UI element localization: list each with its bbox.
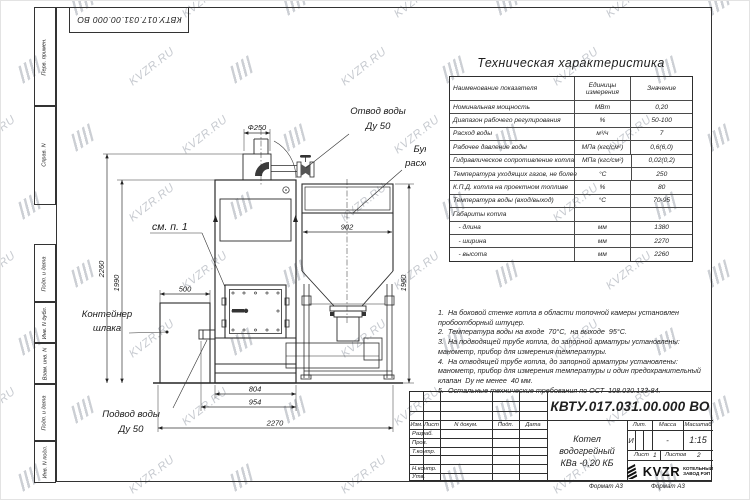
- tech-name: Расход воды: [450, 128, 574, 140]
- format-label-right: Формат А3: [651, 483, 685, 490]
- tech-table-row: - длинамм1380: [450, 221, 692, 234]
- tech-value: 2270: [630, 235, 692, 247]
- tech-name: Диапазон рабочего регулирования: [450, 114, 574, 126]
- top-left-stamp-text: КВТУ.017.031.00.000 ВО: [77, 15, 182, 25]
- watermark-text: KVZR.RU: [0, 114, 18, 157]
- lit-label: Лит.: [627, 420, 652, 430]
- tech-name: Габариты котла: [450, 208, 574, 220]
- tech-value: 1380: [630, 222, 692, 234]
- boiler-drawing: Ф250 902 500 2260 1990 1960 804 954 2270: [61, 96, 426, 441]
- label-bunker-2: расходный: [404, 158, 426, 169]
- tb-col-podp: Подп.: [492, 420, 519, 429]
- note-line: манометр, прибор для измерения температу…: [438, 366, 710, 376]
- tech-name: Гидравлическое сопротивление котла: [450, 155, 574, 167]
- tech-name: Номинальная мощность: [450, 101, 574, 113]
- watermark-text: KVZR.RU: [0, 250, 18, 293]
- label-water-inlet-dn: Ду 50: [118, 424, 144, 435]
- frame-field-3: Инв. N дубл.: [34, 301, 56, 344]
- frame-field-label: Подп. и дата: [42, 395, 48, 430]
- leader-lines: [129, 134, 402, 408]
- flue-elbow: [255, 162, 269, 176]
- tech-unit: %: [574, 114, 631, 126]
- tech-col-unit: Единицы измерения: [574, 77, 631, 100]
- watermark-text: KVZR.RU: [0, 386, 18, 429]
- tb-row-utv: Утв.: [412, 474, 425, 480]
- tech-unit: МПа (кгс/см²): [574, 141, 631, 153]
- frame-field-label: Подп. и дата: [42, 256, 48, 291]
- note-line: 3. На подводящей трубе котла, до запорно…: [438, 337, 710, 347]
- note-line: 4. На отводящей трубе котла, до запорной…: [438, 357, 710, 367]
- tech-table: Наименование показателяЕдиницы измерения…: [449, 76, 693, 262]
- drawing-sheet: KVZR.RUKVZR.RUKVZR.RUKVZR.RUKVZR.RUKVZR.…: [0, 0, 750, 500]
- product-name: Котел водогрейный КВа -0,20 КБ: [547, 420, 627, 482]
- note-line: 2. Температура воды на входе 70°С, на вы…: [438, 327, 710, 337]
- panel-hinge-left: [213, 215, 218, 222]
- fuel-bunker: [302, 179, 393, 341]
- dimension-texts: Ф250 902 500 2260 1990 1960 804 954 2270: [97, 123, 408, 428]
- frame-field-label: Справ. N: [42, 143, 48, 166]
- boiler-structure: [153, 129, 403, 383]
- tech-value: 50-100: [630, 114, 692, 126]
- lit-value: И: [627, 430, 635, 450]
- tech-unit: %: [574, 181, 631, 193]
- frame-field-5: Подп. и дата: [34, 383, 56, 442]
- tech-value: 7: [630, 128, 692, 140]
- tech-table-row: Номинальная мощностьМВт0,20: [450, 100, 692, 113]
- screw-conveyor: [286, 343, 379, 368]
- panel-hinge-right: [293, 215, 298, 222]
- frame-field-4: Взам. инв. N: [34, 342, 56, 385]
- tech-table-title: Техническая характеристика: [449, 56, 693, 70]
- tech-name: Рабочее давление воды: [450, 141, 574, 153]
- tb-col-ndoc: N докум.: [440, 420, 492, 429]
- frame-field-6: Инв. N подл.: [34, 440, 56, 483]
- tech-col-name: Наименование показателя: [450, 77, 574, 100]
- tech-name: - длина: [450, 222, 574, 234]
- slag-container: [160, 303, 215, 383]
- tech-table-row: Рабочее давление водыМПа (кгс/см²)0,6(6,…: [450, 140, 692, 153]
- tech-table-row: К.П.Д. котла на проектном топливе%80: [450, 180, 692, 193]
- valve-handwheel: [300, 155, 311, 158]
- tech-unit: МПа (кгс/см²): [574, 155, 631, 167]
- company-logo: KVZR КОТЕЛЬНЫЙ ЗАВОД РЭП: [627, 460, 713, 482]
- tech-unit: °С: [574, 195, 631, 207]
- frame-field-label: Инв. N дубл.: [42, 306, 48, 338]
- tech-table-row: Гидравлическое сопротивление котлаМПа (к…: [450, 154, 692, 167]
- tech-unit: мм: [574, 222, 631, 234]
- tech-value: 250: [631, 168, 692, 180]
- label-see-note: см. п. 1: [152, 221, 188, 233]
- tech-unit: [574, 208, 631, 220]
- tech-name: Температура воды (вход/выход): [450, 195, 574, 207]
- tech-table-row: Температура воды (вход/выход)°С70-95: [450, 194, 692, 207]
- label-water-inlet: Подвод воды: [102, 409, 160, 420]
- tech-value: 0,6(6,0): [630, 141, 692, 153]
- tech-value: 80: [630, 181, 692, 193]
- boiler-body: [213, 180, 298, 383]
- dim-1960: 1960: [399, 274, 408, 292]
- label-water-outlet: Отвод воды: [350, 106, 406, 117]
- label-slag-container-2: шлака: [93, 323, 121, 334]
- mass-value: -: [652, 430, 683, 450]
- watermark-text: KVZR.RU: [0, 0, 18, 20]
- sheet-value: 1: [653, 452, 657, 459]
- format-label-left: Формат А3: [589, 483, 623, 490]
- tech-value: [630, 208, 692, 220]
- scale-label: Масштаб: [683, 420, 713, 430]
- top-left-stamp: КВТУ.017.031.00.000 ВО: [69, 7, 189, 33]
- note-line: манометр, прибор для измерения температу…: [438, 347, 710, 357]
- doc-number: КВТУ.017.031.00.000 ВО: [547, 392, 713, 420]
- tech-table-row: Температура уходящих газов, не более°С25…: [450, 167, 692, 180]
- sheet-label: Лист: [634, 452, 649, 458]
- frame-field-label: Взам. инв. N: [42, 347, 48, 380]
- frame-field-2: Подп. и дата: [34, 244, 56, 303]
- tech-name: Температура уходящих газов, не более: [450, 168, 574, 180]
- tech-table-header: Наименование показателяЕдиницы измерения…: [450, 77, 692, 100]
- dim-1990: 1990: [112, 274, 121, 292]
- sheets-value: 2: [697, 452, 701, 459]
- tech-unit: мм: [574, 248, 631, 260]
- outlet-valve: [297, 155, 314, 177]
- tech-table-row: - высотамм2260: [450, 247, 692, 260]
- tech-name: - ширина: [450, 235, 574, 247]
- tech-unit: м³/ч: [574, 128, 631, 140]
- label-water-outlet-dn: Ду 50: [365, 121, 391, 132]
- tech-unit: °С: [574, 168, 631, 180]
- door-handle: [232, 309, 244, 313]
- tech-unit: МВт: [574, 101, 631, 113]
- title-block: Изм. Лист N докум. Подп. Дата Разраб. Пр…: [409, 391, 712, 481]
- sheets-label: Листов: [665, 452, 686, 458]
- tech-unit: мм: [574, 235, 631, 247]
- frame-field-label: Инв. N подл.: [42, 445, 48, 478]
- tech-table-row: Габариты котла: [450, 207, 692, 220]
- frame-field-0: Перв. примен.: [34, 7, 56, 107]
- tech-value: 2260: [630, 248, 692, 260]
- company-name: КОТЕЛЬНЫЙ ЗАВОД РЭП: [683, 466, 713, 477]
- tech-value: 0,20: [630, 101, 692, 113]
- dim-2260: 2260: [97, 260, 106, 279]
- tb-row-tkontr: Т.контр.: [412, 449, 435, 455]
- frame-field-label: Перв. примен.: [42, 38, 48, 75]
- note-line: пробоотборный штуцер.: [438, 318, 710, 328]
- furnace-door: [222, 285, 289, 338]
- label-slag-container: Контейнер: [82, 309, 132, 320]
- tech-table-row: - ширинамм2270: [450, 234, 692, 247]
- tech-col-value: Значение: [630, 77, 692, 100]
- dim-902: 902: [341, 223, 354, 232]
- feeder-frame: [286, 284, 394, 379]
- dim-804: 804: [249, 385, 262, 394]
- tb-row-nkontr: Н.контр.: [412, 466, 437, 472]
- dim-954: 954: [249, 398, 262, 407]
- tb-col-data: Дата: [519, 420, 547, 429]
- tech-value: 0,02(0,2): [631, 155, 692, 167]
- mass-label: Масса: [652, 420, 683, 430]
- dim-phi250: Ф250: [248, 123, 267, 132]
- frame-field-1: Справ. N: [34, 105, 56, 205]
- note-line: клапан Dу не менее 40 мм.: [438, 376, 710, 386]
- dim-2270: 2270: [266, 419, 285, 428]
- tech-table-row: Диапазон рабочего регулирования%50-100: [450, 113, 692, 126]
- label-bunker: Бункер: [413, 144, 426, 155]
- tech-name: К.П.Д. котла на проектном топливе: [450, 181, 574, 193]
- note-line: 1. На боковой стенке котла в области топ…: [438, 308, 710, 318]
- kvzr-logo-text: KVZR: [643, 464, 680, 479]
- tech-name: - высота: [450, 248, 574, 260]
- kvzr-logo-icon: [627, 464, 640, 479]
- scale-value: 1:15: [683, 430, 713, 450]
- technical-notes: 1. На боковой стенке котла в области топ…: [438, 308, 710, 395]
- tech-table-row: Расход водым³/ч7: [450, 127, 692, 140]
- tech-value: 70-95: [630, 195, 692, 207]
- dim-500: 500: [179, 285, 192, 294]
